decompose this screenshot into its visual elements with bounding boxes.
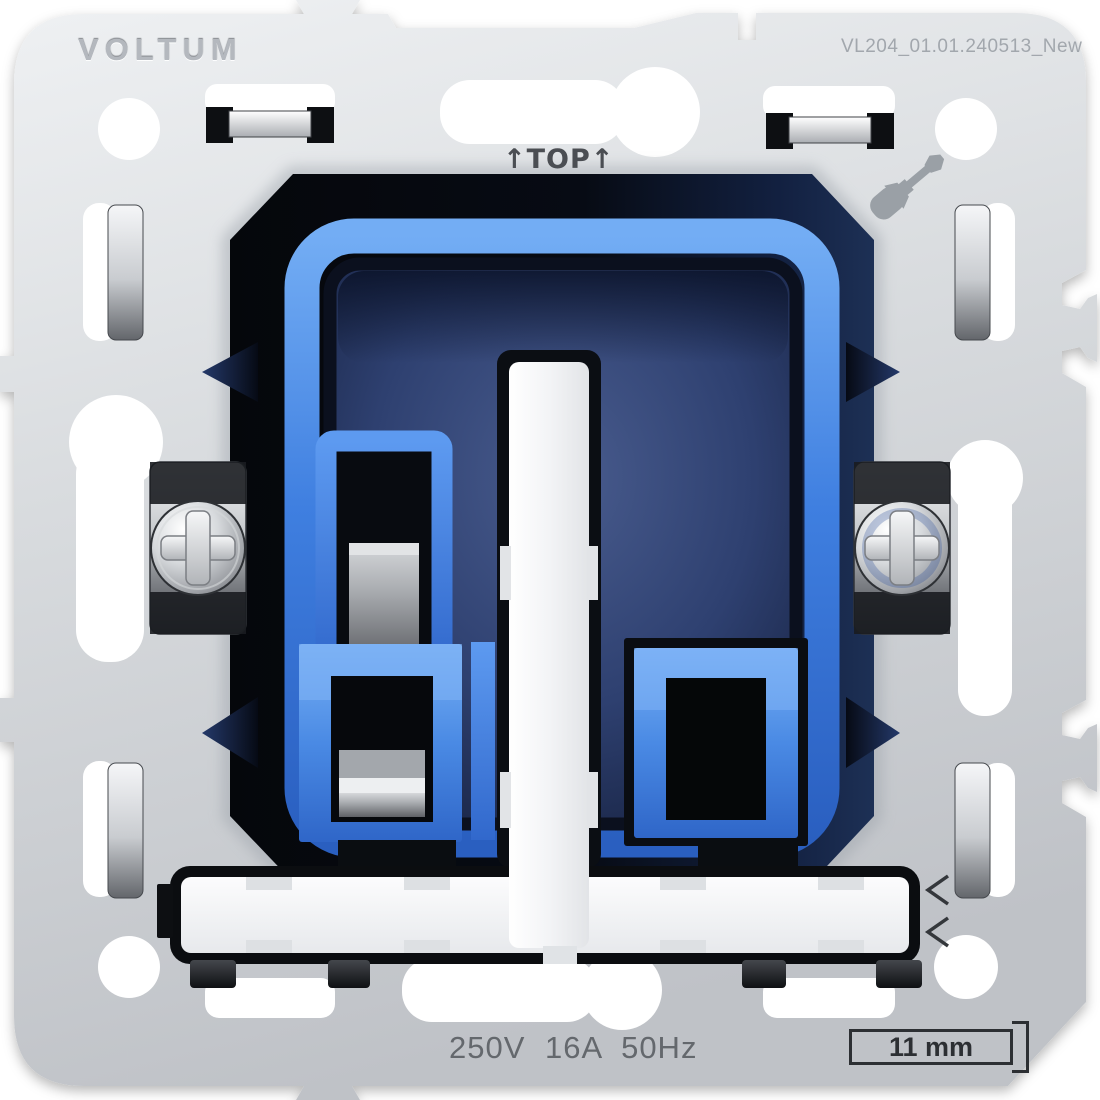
terminal-right bbox=[624, 638, 808, 846]
corner-hole-bottom-left bbox=[98, 936, 160, 998]
corner-hole-top-left bbox=[98, 98, 160, 160]
clip-left-lower bbox=[108, 763, 143, 898]
model-code: VL204_01.01.240513_New bbox=[841, 36, 1082, 58]
product-photo-flush-mount-switch-insert: VOLTUM VL204_01.01.240513_New ↑TOP↑ 250V… bbox=[0, 0, 1100, 1100]
bar-left-clip bbox=[157, 884, 173, 938]
depth-dimension-box: 11 mm bbox=[849, 1029, 1013, 1065]
depth-dimension-label: 11 mm bbox=[889, 1032, 973, 1063]
electrical-rating-label: 250V 16A 50Hz bbox=[449, 1030, 697, 1066]
top-orientation-label: ↑TOP↑ bbox=[503, 144, 614, 175]
brand-logo: VOLTUM bbox=[78, 32, 243, 68]
actuator-column bbox=[500, 362, 598, 964]
corner-hole-top-right bbox=[935, 98, 997, 160]
contact-slider bbox=[349, 543, 419, 660]
depth-dimension-bracket bbox=[1012, 1021, 1029, 1073]
clip-right-lower bbox=[955, 763, 990, 898]
fixing-screw-left bbox=[150, 462, 246, 634]
clip-right-upper bbox=[955, 205, 990, 340]
module-foot-left bbox=[338, 840, 456, 870]
fixing-screw-right bbox=[854, 462, 950, 634]
rocker-contact-tower bbox=[326, 441, 442, 667]
clip-left-upper bbox=[108, 205, 143, 340]
keyhole-slot-right bbox=[947, 440, 1023, 716]
recess-top-shadow bbox=[338, 271, 788, 363]
terminal-right-opening bbox=[666, 678, 766, 820]
module-foot-right bbox=[698, 840, 798, 870]
